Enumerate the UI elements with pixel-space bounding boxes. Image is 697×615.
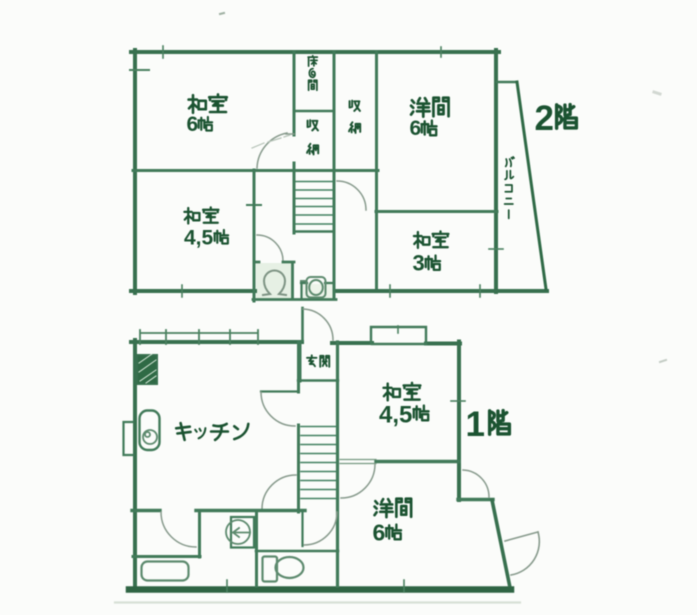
svg-text:3: 3 (413, 251, 425, 276)
svg-text:6: 6 (187, 113, 199, 136)
svg-text:1: 1 (466, 405, 485, 444)
svg-text:6: 6 (410, 117, 422, 140)
svg-text:4,5: 4,5 (184, 227, 214, 250)
svg-text:2: 2 (535, 99, 554, 138)
svg-text:6: 6 (373, 520, 386, 546)
svg-text:4,5: 4,5 (379, 402, 412, 429)
